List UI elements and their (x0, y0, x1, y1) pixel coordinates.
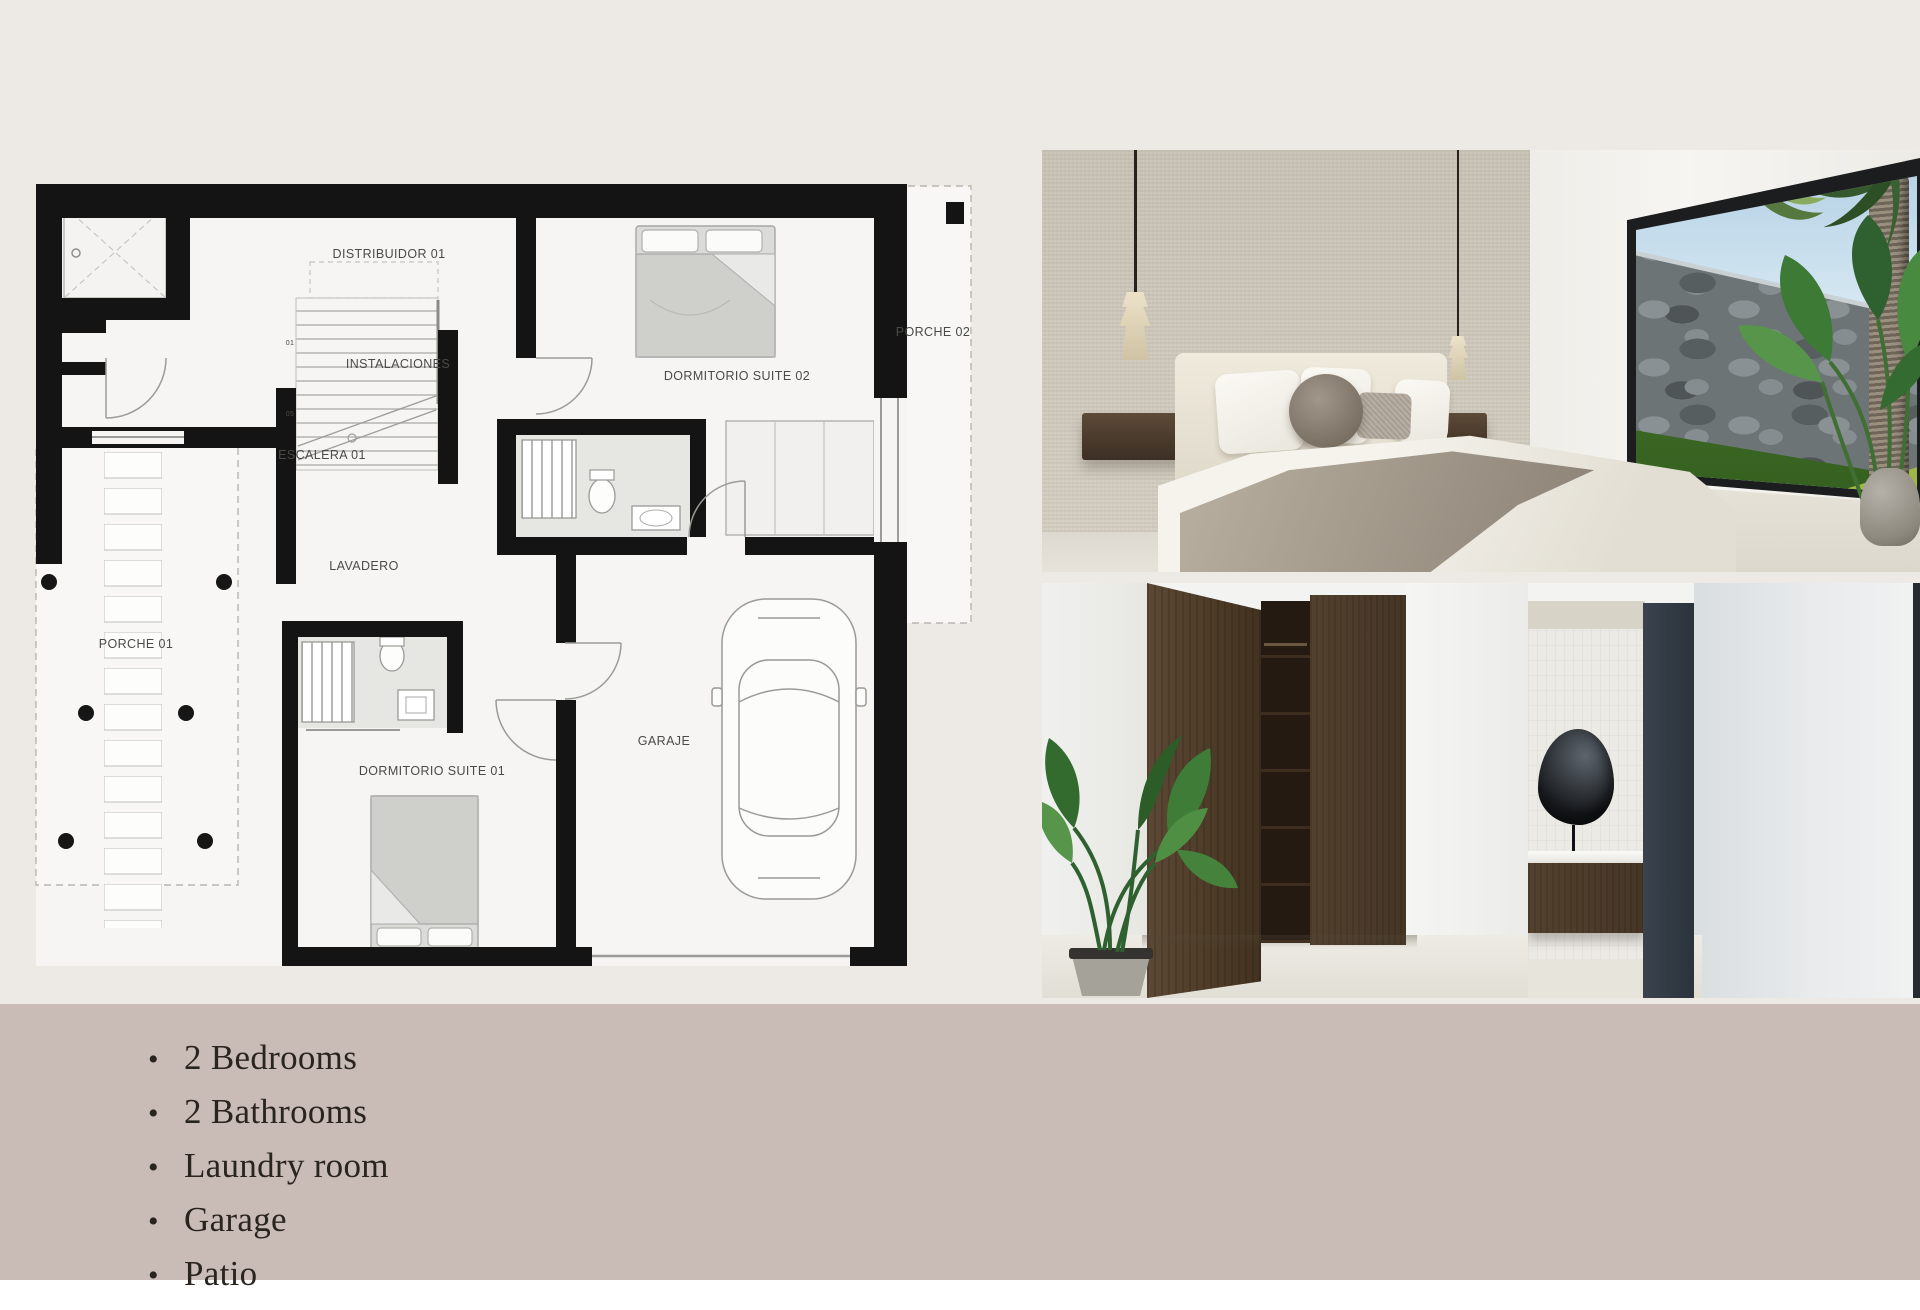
vanity-countertop (1528, 851, 1645, 863)
nightstand-left (1082, 413, 1184, 460)
room-label-instalaciones: INSTALACIONES (346, 357, 450, 371)
stone-planter-pot (1860, 468, 1920, 546)
bullet-icon: • (148, 1150, 170, 1186)
stair-mark-05: 05 (286, 411, 295, 418)
stair-mark-01: 01 (286, 340, 295, 347)
vanity-cabinet (1528, 863, 1645, 933)
right-wall (1694, 583, 1920, 998)
round-bolster-cushion (1289, 374, 1363, 448)
feature-item-bathrooms: •2 Bathrooms (148, 1094, 389, 1132)
bed-suite01 (371, 796, 478, 950)
bathroom-doorway (1528, 601, 1645, 998)
pendant-cord-left (1134, 150, 1137, 293)
slate-pocket-door (1643, 603, 1694, 998)
right-door-edge (1913, 583, 1920, 998)
bullet-icon: • (148, 1204, 170, 1240)
shower (64, 206, 166, 298)
bathroom-floor (1528, 959, 1645, 998)
feature-item-bedrooms: •2 Bedrooms (148, 1040, 389, 1078)
bathroom-suite01 (296, 637, 447, 730)
wardrobe-panel (1310, 595, 1406, 945)
bullet-icon: • (148, 1096, 170, 1132)
floor-plan: DISTRIBUIDOR 01 INSTALACIONES ESCALERA 0… (30, 150, 980, 980)
bathroom-suite02 (516, 435, 690, 537)
bullet-icon: • (148, 1042, 170, 1078)
feature-item-patio: •Patio (148, 1256, 389, 1294)
room-label-suite02: DORMITORIO SUITE 02 (664, 369, 810, 383)
room-label-lavadero: LAVADERO (329, 559, 398, 573)
room-label-suite01: DORMITORIO SUITE 01 (359, 764, 505, 778)
bedroom-photo (1042, 150, 1920, 572)
bullet-icon: • (148, 1258, 170, 1294)
feature-item-garage: •Garage (148, 1202, 389, 1240)
room-label-garaje: GARAJE (638, 734, 690, 748)
faucet (1572, 825, 1575, 851)
dressing-room-photo (1042, 583, 1920, 998)
room-label-porche02: PORCHE 02 (896, 325, 970, 339)
room-label-porche01: PORCHE 01 (99, 637, 173, 651)
pendant-cord-right (1457, 150, 1459, 337)
bed-suite02 (636, 226, 775, 357)
car (712, 599, 866, 899)
brochure-page: DISTRIBUIDOR 01 INSTALACIONES ESCALERA 0… (0, 0, 1920, 1280)
porch-02-area (896, 186, 971, 623)
feature-item-laundry: •Laundry room (148, 1148, 389, 1186)
closet-suite02 (726, 421, 874, 535)
doorway-header (1528, 601, 1645, 629)
room-label-distribuidor: DISTRIBUIDOR 01 (333, 247, 446, 261)
wardrobe-rail (1264, 643, 1307, 646)
wardrobe-interior (1261, 601, 1310, 943)
potted-plant (1042, 678, 1242, 998)
feature-list: •2 Bedrooms •2 Bathrooms •Laundry room •… (148, 1040, 389, 1310)
accent-pillow (1356, 392, 1412, 440)
room-label-escalera: ESCALERA 01 (278, 448, 366, 462)
porch-01-area (36, 446, 238, 928)
